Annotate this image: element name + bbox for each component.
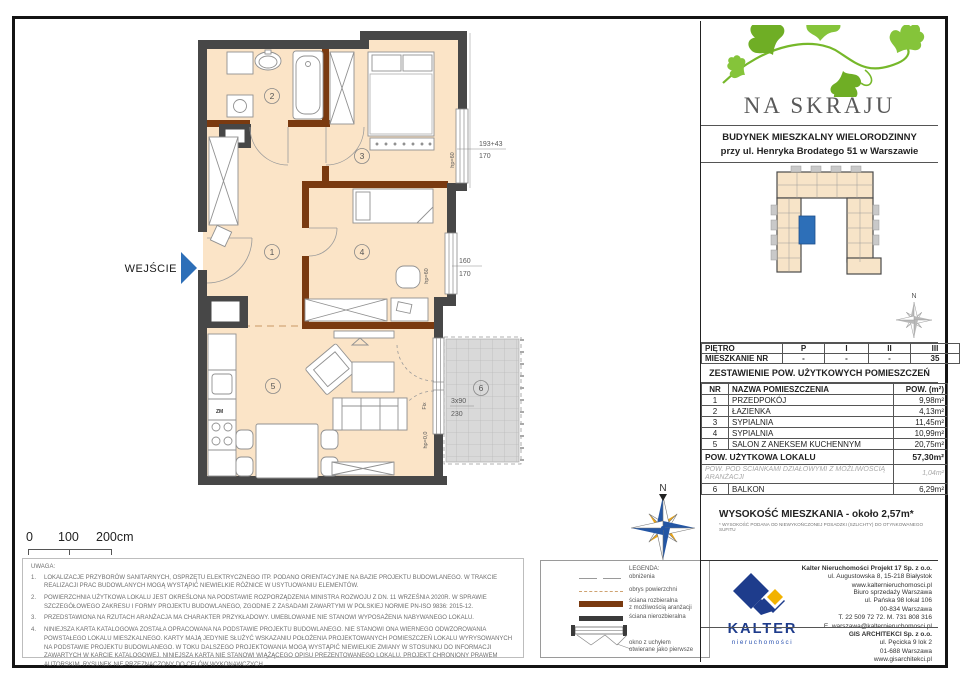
compass-rose-icon: N xyxy=(631,483,695,560)
dim-balcony-bottom: 230 xyxy=(451,411,463,418)
legend-title: LEGENDA: xyxy=(629,566,659,572)
notes-box: UWAGA: 1.LOKALIZACJE PRZYBORÓW SANITARNY… xyxy=(22,558,524,658)
height-footnote: * WYSOKOŚĆ PODANA OD NIEWYKOŃCZONEJ POSA… xyxy=(719,522,938,532)
col-area: POW. (m²) xyxy=(894,384,948,395)
double-bed xyxy=(368,52,434,150)
scale-0: 0 xyxy=(26,530,33,544)
table-row: 4SYPIALNIA10,99m² xyxy=(702,428,948,439)
single-bed xyxy=(353,189,433,223)
col-nr: NR xyxy=(702,384,729,395)
legend-window-2: otwierane jako pierwsze xyxy=(629,647,693,653)
area-table-title: ZESTAWIENIE POW. UŻYTKOWYCH POMIESZCZEŃ xyxy=(701,364,938,383)
window-bedroom3 xyxy=(456,109,468,183)
contact-section: KALTER nieruchomości Kalter Nieruchomośc… xyxy=(701,560,938,662)
col-name: NAZWA POMIESZCZENIA xyxy=(729,384,894,395)
total-area: 57,30m² xyxy=(894,450,948,465)
entrance-marker: WEJŚCIE xyxy=(125,252,197,284)
site-plan-section: N xyxy=(701,163,938,343)
scale-100: 100 xyxy=(58,530,79,544)
room-number-3: 3 xyxy=(360,151,365,161)
total-row: POW. UŻYTKOWA LOKALU57,30m² xyxy=(702,450,948,465)
apartment-number-label: MIESZKANIE NR xyxy=(702,354,783,364)
wardrobe-bedroom3 xyxy=(330,52,354,124)
table-row: 1PRZEDPOKÓJ9,98m² xyxy=(702,395,948,406)
dim-window3-top: 193+43 xyxy=(479,141,503,148)
height-label: WYSOKOŚĆ MIESZKANIA - około 2,57m* xyxy=(719,509,938,520)
fix-label: Fix xyxy=(422,402,428,410)
title-block-panel: NA SKRAJU BUDYNEK MIESZKALNY WIELORODZIN… xyxy=(700,21,938,662)
sales-office-contact: Biuro sprzedaży Warszawa ul. Pańska 98 l… xyxy=(824,589,932,631)
shaft-lower xyxy=(211,301,240,322)
architect-contact: GIS ARCHITEKCI Sp. z o.o. ul. Pęcicka 9 … xyxy=(701,627,938,665)
brand-name: NA SKRAJU xyxy=(701,93,938,119)
partition-row: POW. POD ŚCIANKAMI DZIAŁOWYMI Z MOŻLIWOŚ… xyxy=(702,465,948,484)
height-section: WYSOKOŚĆ MIESZKANIA - około 2,57m* * WYS… xyxy=(701,499,938,532)
highlighted-unit xyxy=(799,216,815,244)
kalter-logo-icon xyxy=(731,571,795,615)
scale-bar: 0 100 200cm xyxy=(28,530,158,558)
dim-balcony-top: 3x90 xyxy=(451,398,466,405)
kitchen-counter xyxy=(208,334,236,476)
area-table-section: NR NAZWA POMIESZCZENIA POW. (m²) 1PRZEDP… xyxy=(701,383,938,495)
desk-chair xyxy=(396,266,420,288)
site-north-label: N xyxy=(911,293,916,300)
entrance-label: WEJŚCIE xyxy=(125,262,177,275)
ivy-logo-icon xyxy=(715,25,925,97)
dining-table xyxy=(256,424,318,478)
note-item: 1.LOKALIZACJE PRZYBORÓW SANITARNYCH, OSP… xyxy=(31,574,515,591)
hq-contact: Kalter Nieruchomości Projekt 17 Sp. z o.… xyxy=(802,565,932,590)
bath-cabinet xyxy=(227,52,253,74)
structural-wall-symbol xyxy=(579,616,623,621)
floor-table: PIĘTRO P I II III MIESZKANIE NR - - - 35 xyxy=(701,343,960,364)
balcony-row: 6BALKON6,29m² xyxy=(702,484,948,495)
site-plan: N xyxy=(701,163,938,342)
notes-title: UWAGA: xyxy=(31,563,515,572)
note-item: 2.POWIERZCHNIA UŻYTKOWA LOKALU JEST OKRE… xyxy=(31,594,515,611)
legend-structural: ściana nierozbieralna xyxy=(629,614,686,620)
parapet-label-w4: hp=60 xyxy=(424,268,430,283)
wardrobe-hallway xyxy=(209,137,238,225)
floor-row-label: PIĘTRO xyxy=(702,344,783,354)
note-item: 3.PRZEDSTAWIONA NA RZUTACH ARANŻACJA MA … xyxy=(31,614,515,623)
site-compass-icon: N xyxy=(896,293,932,338)
area-table: NR NAZWA POMIESZCZENIA POW. (m²) 1PRZEDP… xyxy=(701,383,948,495)
dim-window4-top: 160 xyxy=(459,258,471,265)
removable-wall-symbol xyxy=(579,601,623,607)
table-row: 5SALON Z ANEKSEM KUCHENNYM20,75m² xyxy=(702,439,948,450)
tilt-window-symbol xyxy=(569,625,633,651)
window-bedroom4 xyxy=(445,233,457,294)
wardrobe-bedroom4 xyxy=(305,299,387,321)
room-number-1: 1 xyxy=(270,247,275,257)
total-label: POW. UŻYTKOWA LOKALU xyxy=(702,450,894,465)
entrance-arrow-icon xyxy=(181,252,197,284)
low-cabinet xyxy=(332,462,394,475)
legend-lowered: obniżenia xyxy=(629,574,655,580)
room-number-4: 4 xyxy=(360,247,365,257)
legend-removable-2: z możliwością aranżacji xyxy=(629,605,692,611)
side-table xyxy=(352,362,394,392)
area-outline-symbol xyxy=(579,591,623,592)
room-number-2: 2 xyxy=(270,91,275,101)
legend-outline: obrys powierzchni xyxy=(629,587,677,593)
sofa xyxy=(333,398,407,430)
parapet-label-w3: hp=60 xyxy=(450,152,456,167)
note-item: 4.NINIEJSZA KARTA KATALOGOWA ZOSTAŁA OPR… xyxy=(31,626,515,669)
dishwasher-label: ZM xyxy=(216,409,223,415)
table-row: 3SYPIALNIA11,45m² xyxy=(702,417,948,428)
lowered-ceiling-symbol xyxy=(579,578,597,579)
catalog-sheet: 1 2 3 4 5 6 193+43 170 160 170 3x90 230 … xyxy=(0,0,960,678)
legend-window-1: okno z uchyłem xyxy=(629,640,671,646)
partition-area: 1,04m² xyxy=(894,465,948,484)
kitchen-sink xyxy=(212,374,232,394)
dim-window3-bottom: 170 xyxy=(479,153,491,160)
legend-box: LEGENDA: obniżenia obrys powierzchni ści… xyxy=(540,560,710,658)
floor-table-section: PIĘTRO P I II III MIESZKANIE NR - - - 35 xyxy=(701,343,938,364)
room-number-5: 5 xyxy=(271,381,276,391)
north-label: N xyxy=(659,483,666,494)
room-number-6: 6 xyxy=(479,383,484,393)
partition-label: POW. POD ŚCIANKAMI DZIAŁOWYMI Z MOŻLIWOŚ… xyxy=(702,465,894,484)
building-title-line1: BUDYNEK MIESZKALNY WIELORODZINNY xyxy=(701,131,938,145)
apartment-number-value: 35 xyxy=(911,354,960,364)
hp0-label: hp=0,0 xyxy=(423,432,429,449)
building-title: BUDYNEK MIESZKALNY WIELORODZINNY przy ul… xyxy=(701,126,938,163)
dim-window4-bottom: 170 xyxy=(459,271,471,278)
building-title-line2: przy ul. Henryka Brodatego 51 w Warszawi… xyxy=(701,145,938,159)
legend-removable-1: ściana rozbieralna xyxy=(629,598,678,604)
table-row: 2ŁAZIENKA4,13m² xyxy=(702,406,948,417)
brand-section: NA SKRAJU xyxy=(701,21,938,126)
scale-200: 200cm xyxy=(96,530,134,544)
